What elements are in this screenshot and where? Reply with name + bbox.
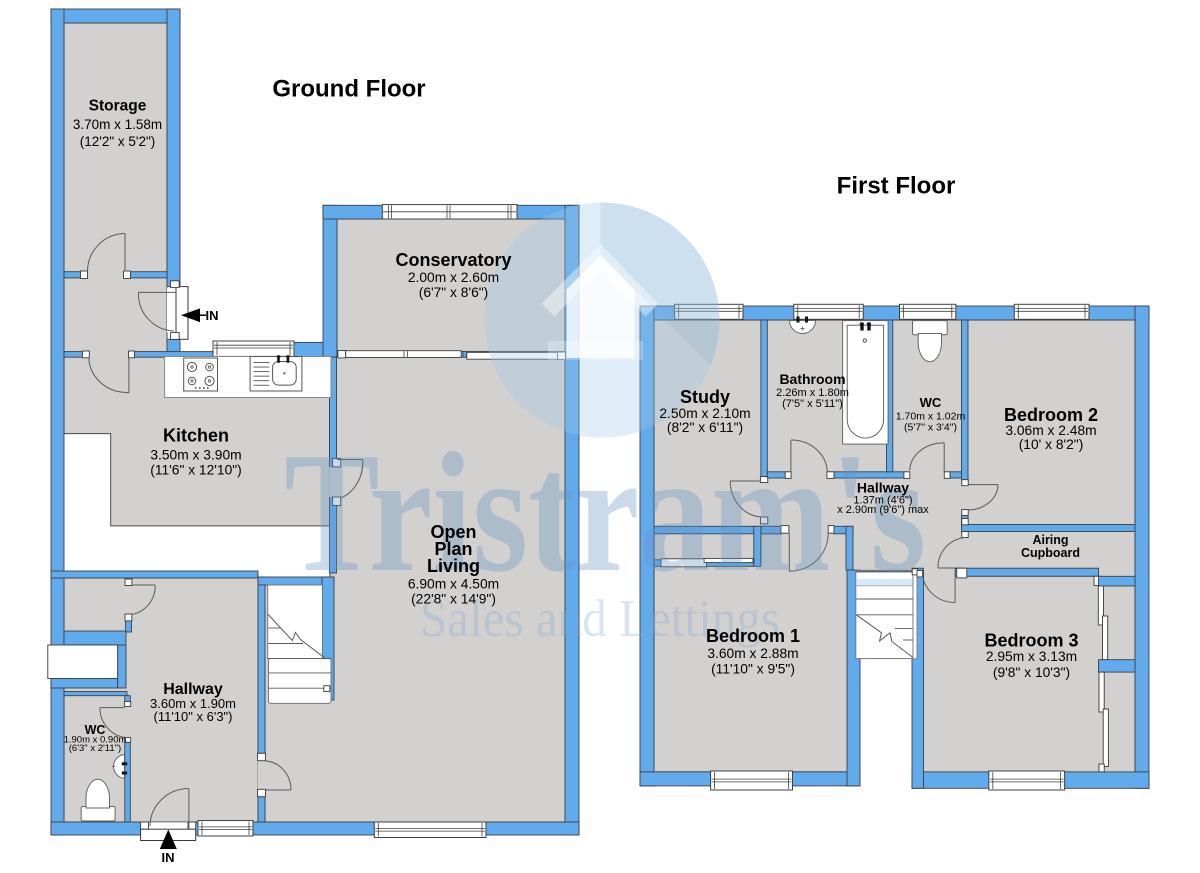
svg-text:Study: Study [680,387,730,407]
svg-text:Hallway: Hallway [857,480,909,496]
svg-text:IN: IN [206,308,219,323]
svg-text:3.06m x 2.48m: 3.06m x 2.48m [1005,423,1096,438]
svg-text:(6'3" x 2'11"): (6'3" x 2'11") [69,743,121,754]
svg-text:(22'8" x 14'9"): (22'8" x 14'9") [411,592,496,607]
svg-text:2.00m x 2.60m: 2.00m x 2.60m [408,270,499,285]
svg-text:Airing: Airing [1032,533,1068,547]
svg-text:Bedroom 2: Bedroom 2 [1004,405,1098,425]
svg-text:(12'2" x 5'2"): (12'2" x 5'2") [80,134,156,149]
svg-text:6.90m x 4.50m: 6.90m x 4.50m [408,577,499,592]
svg-text:IN: IN [162,850,175,865]
svg-text:Bedroom 3: Bedroom 3 [984,631,1078,651]
svg-text:3.60m x 2.88m: 3.60m x 2.88m [707,646,798,661]
svg-text:(11'6" x 12'10"): (11'6" x 12'10") [150,463,242,478]
svg-text:Bathroom: Bathroom [779,371,845,387]
svg-text:3.70m x 1.58m: 3.70m x 1.58m [73,117,162,132]
svg-text:x 2.90m (9'6") max: x 2.90m (9'6") max [837,504,929,516]
svg-text:(11'10" x 9'5"): (11'10" x 9'5") [711,662,795,677]
svg-text:Kitchen: Kitchen [163,426,229,446]
svg-text:First Floor: First Floor [837,173,956,200]
svg-text:(7'5" x 5'11"): (7'5" x 5'11") [782,398,843,410]
svg-text:(6'7" x 8'6"): (6'7" x 8'6") [419,285,489,300]
svg-text:(8'2" x 6'11"): (8'2" x 6'11") [667,420,743,435]
svg-text:Tristram's: Tristram's [284,418,926,608]
svg-text:Storage: Storage [89,98,147,115]
svg-text:Conservatory: Conservatory [395,250,511,270]
svg-text:(10' x 8'2"): (10' x 8'2") [1019,437,1084,452]
svg-text:(9'8" x 10'3"): (9'8" x 10'3") [993,665,1070,680]
svg-text:2.50m x 2.10m: 2.50m x 2.10m [659,406,750,421]
svg-text:2.95m x 3.13m: 2.95m x 3.13m [986,649,1077,664]
svg-text:3.50m x 3.90m: 3.50m x 3.90m [150,448,241,463]
svg-text:Bedroom 1: Bedroom 1 [706,626,800,646]
svg-text:Living: Living [427,556,480,576]
svg-text:Ground Floor: Ground Floor [272,76,425,103]
svg-text:WC: WC [920,395,942,410]
svg-text:Cupboard: Cupboard [1021,546,1080,560]
svg-text:(5'7" x 3'4"): (5'7" x 3'4") [904,422,957,434]
svg-text:(11'10" x 6'3"): (11'10" x 6'3") [154,709,233,724]
